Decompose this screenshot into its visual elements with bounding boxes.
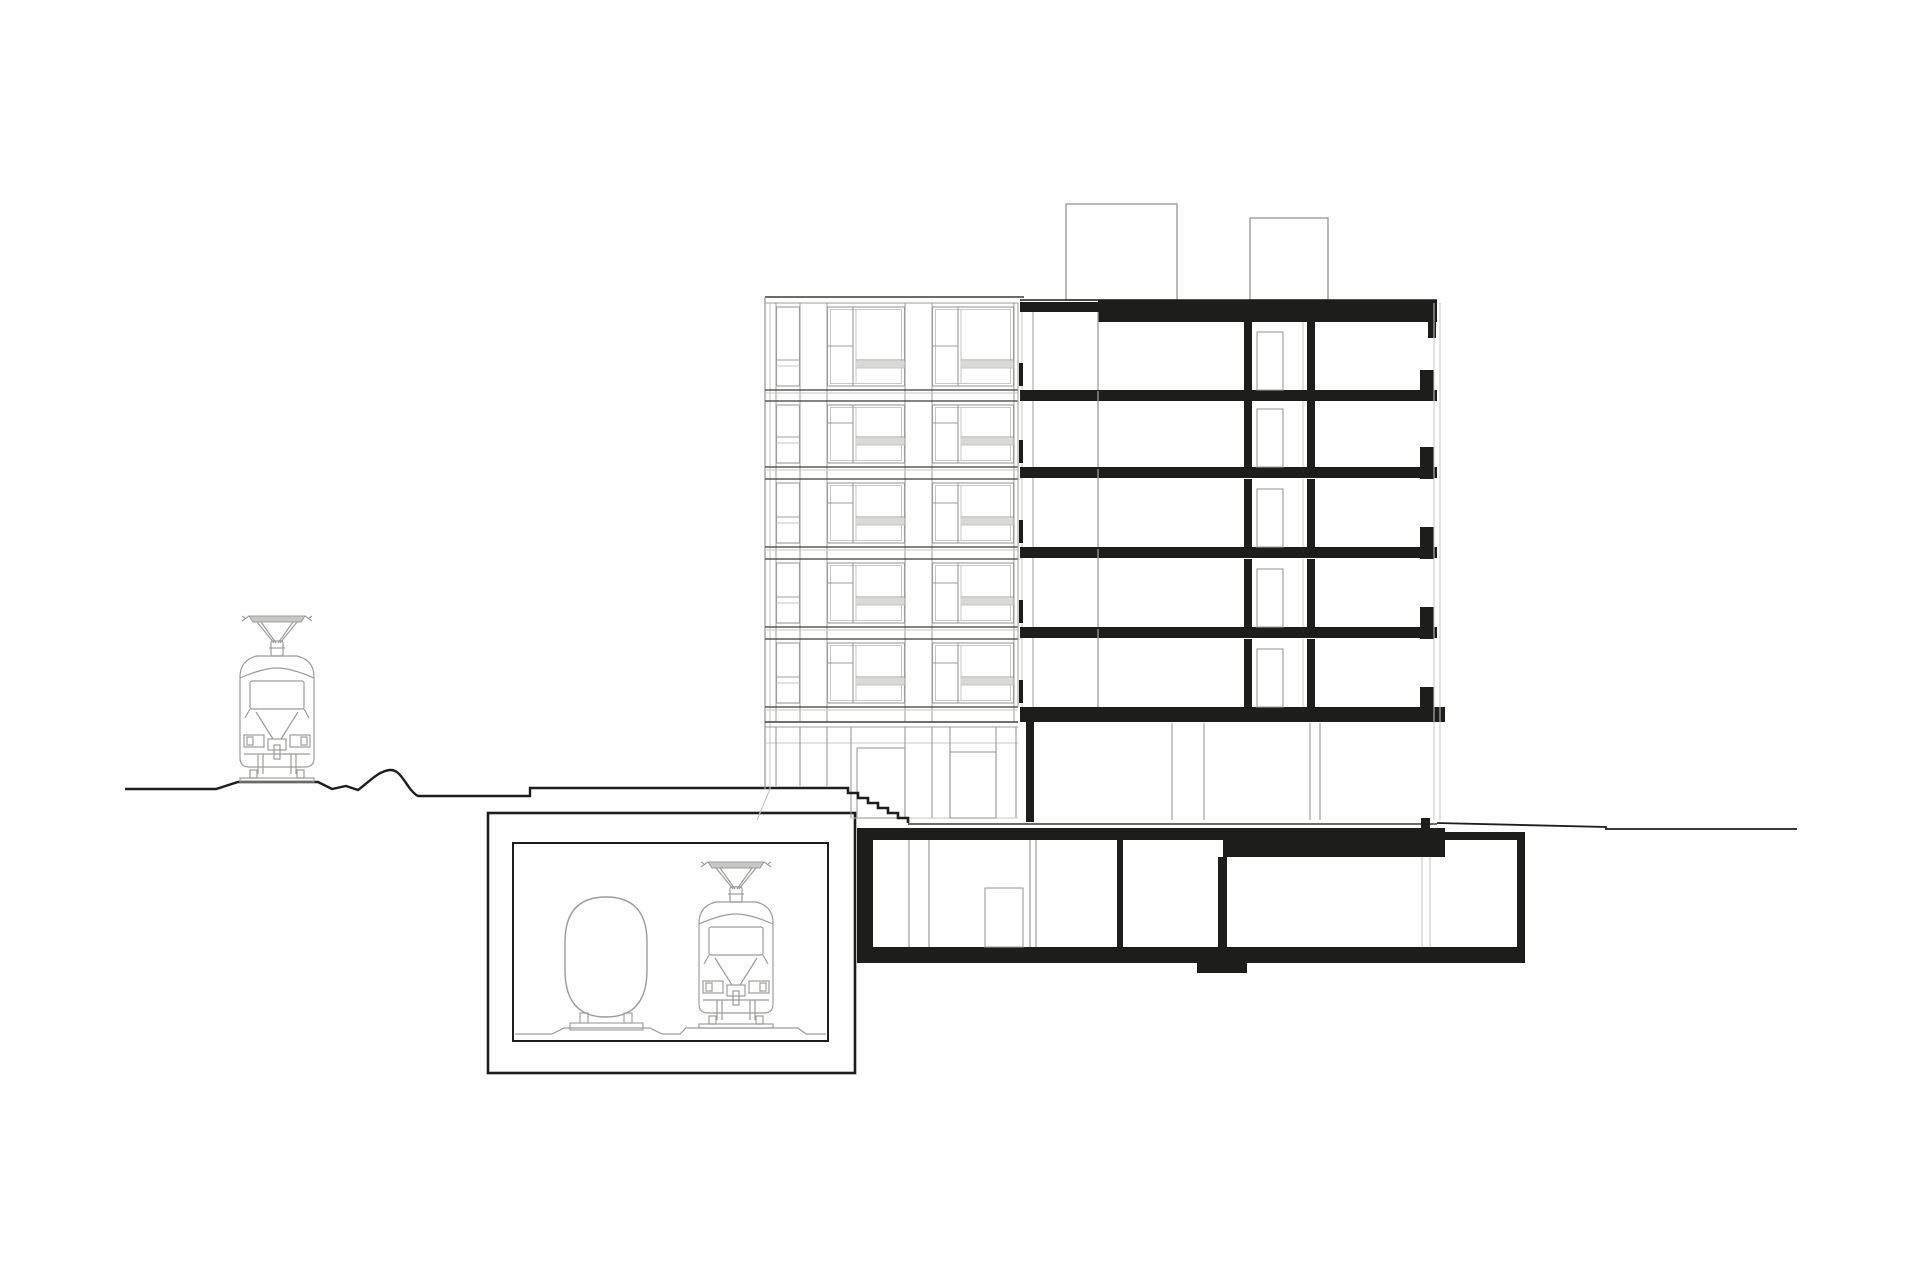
window-shadow-frame bbox=[831, 408, 902, 461]
step-block bbox=[1197, 963, 1247, 973]
narrow-window bbox=[777, 307, 800, 386]
interior-door bbox=[1257, 489, 1283, 547]
window-module bbox=[828, 643, 905, 703]
roof-structure bbox=[1066, 204, 1177, 300]
spandrel-panel bbox=[961, 518, 1014, 525]
facade-spandrel-block bbox=[1420, 527, 1434, 559]
floor-slab bbox=[1020, 390, 1437, 401]
spandrel-panel bbox=[856, 598, 905, 605]
left-wall bbox=[857, 828, 873, 962]
interior-door bbox=[1257, 569, 1283, 627]
balcony-railing-post bbox=[1019, 680, 1023, 703]
interior-wall bbox=[1244, 401, 1252, 467]
narrow-window bbox=[777, 405, 800, 463]
interior-wall bbox=[1244, 322, 1252, 390]
rooftop-structures bbox=[1066, 204, 1328, 300]
window-module bbox=[828, 405, 905, 463]
roof-edge-cap bbox=[1428, 322, 1436, 338]
window-shadow-frame bbox=[936, 646, 1011, 701]
window-module bbox=[933, 405, 1014, 463]
ground-line bbox=[125, 770, 1797, 829]
roof-slab bbox=[1020, 302, 1098, 312]
spandrel-panel bbox=[856, 518, 905, 525]
tunnel-box bbox=[488, 813, 855, 1073]
interior-wall bbox=[1244, 559, 1252, 627]
interior-wall bbox=[1244, 479, 1252, 547]
right-wall bbox=[1517, 832, 1525, 963]
window-module bbox=[933, 643, 1014, 703]
window-shadow-frame bbox=[936, 566, 1011, 621]
ground-floor-wall bbox=[1026, 722, 1034, 822]
interior-wall bbox=[1307, 559, 1315, 627]
window-module bbox=[933, 483, 1014, 543]
interior-wall bbox=[1244, 639, 1252, 707]
roof-slab bbox=[1098, 300, 1437, 322]
interior-wall bbox=[1307, 401, 1315, 467]
narrow-window bbox=[777, 563, 800, 623]
entrance-door bbox=[950, 752, 996, 818]
spandrel-panel bbox=[961, 361, 1014, 368]
architectural-section-drawing bbox=[0, 0, 1920, 1280]
terrain-line-right bbox=[1437, 823, 1797, 829]
narrow-window bbox=[777, 643, 800, 703]
floor-slab bbox=[857, 947, 1525, 963]
spandrel-panel bbox=[961, 438, 1014, 445]
drawing-sheet bbox=[0, 0, 1920, 1280]
building-elevation bbox=[757, 297, 1033, 820]
basement-section bbox=[857, 828, 1525, 973]
window-shadow-frame bbox=[831, 646, 902, 701]
balcony-railing-post bbox=[1019, 363, 1023, 386]
interior-door bbox=[1257, 409, 1283, 467]
floor-slab bbox=[1020, 547, 1437, 558]
building-section-cut bbox=[1019, 300, 1445, 832]
narrow-window bbox=[777, 483, 800, 543]
window-shadow-frame bbox=[831, 486, 902, 541]
terrain-line-left bbox=[125, 770, 838, 796]
balcony-railing-post bbox=[1019, 440, 1023, 463]
street-tram bbox=[240, 616, 314, 782]
interior-wall bbox=[1307, 639, 1315, 707]
top-slab-b bbox=[1223, 828, 1445, 857]
basement-wall bbox=[1117, 840, 1123, 947]
spandrel-panel bbox=[961, 678, 1014, 685]
ground-floor-slab bbox=[1020, 707, 1445, 722]
floor-slab bbox=[1020, 627, 1437, 638]
basement-door bbox=[985, 888, 1023, 947]
window-module bbox=[828, 483, 905, 543]
balcony-railing-post bbox=[1019, 520, 1023, 543]
top-slab-c bbox=[1445, 832, 1517, 840]
facade-spandrel-block bbox=[1420, 687, 1434, 722]
facade-spandrel-block bbox=[1420, 447, 1434, 479]
window-shadow-frame bbox=[936, 486, 1011, 541]
spandrel-panel bbox=[856, 678, 905, 685]
window-shadow-frame bbox=[831, 566, 902, 621]
interior-door bbox=[1257, 649, 1283, 707]
balcony-railing-post bbox=[1019, 600, 1023, 623]
interior-door bbox=[1257, 332, 1283, 390]
basement-wall bbox=[1218, 857, 1227, 947]
floor-slab bbox=[1020, 467, 1437, 478]
spandrel-panel bbox=[856, 438, 905, 445]
tunnel-inner-wall bbox=[513, 843, 828, 1041]
interior-wall bbox=[1307, 322, 1315, 390]
facade-spandrel-block bbox=[1420, 607, 1434, 639]
spandrel-panel bbox=[856, 361, 905, 368]
window-module bbox=[933, 563, 1014, 623]
window-shadow-frame bbox=[936, 408, 1011, 461]
top-slab-a bbox=[857, 828, 1223, 840]
facade-spandrel-block bbox=[1420, 370, 1434, 401]
spandrel-panel bbox=[961, 598, 1014, 605]
window-module bbox=[828, 563, 905, 623]
interior-wall bbox=[1307, 479, 1315, 547]
roof-structure bbox=[1250, 218, 1328, 300]
